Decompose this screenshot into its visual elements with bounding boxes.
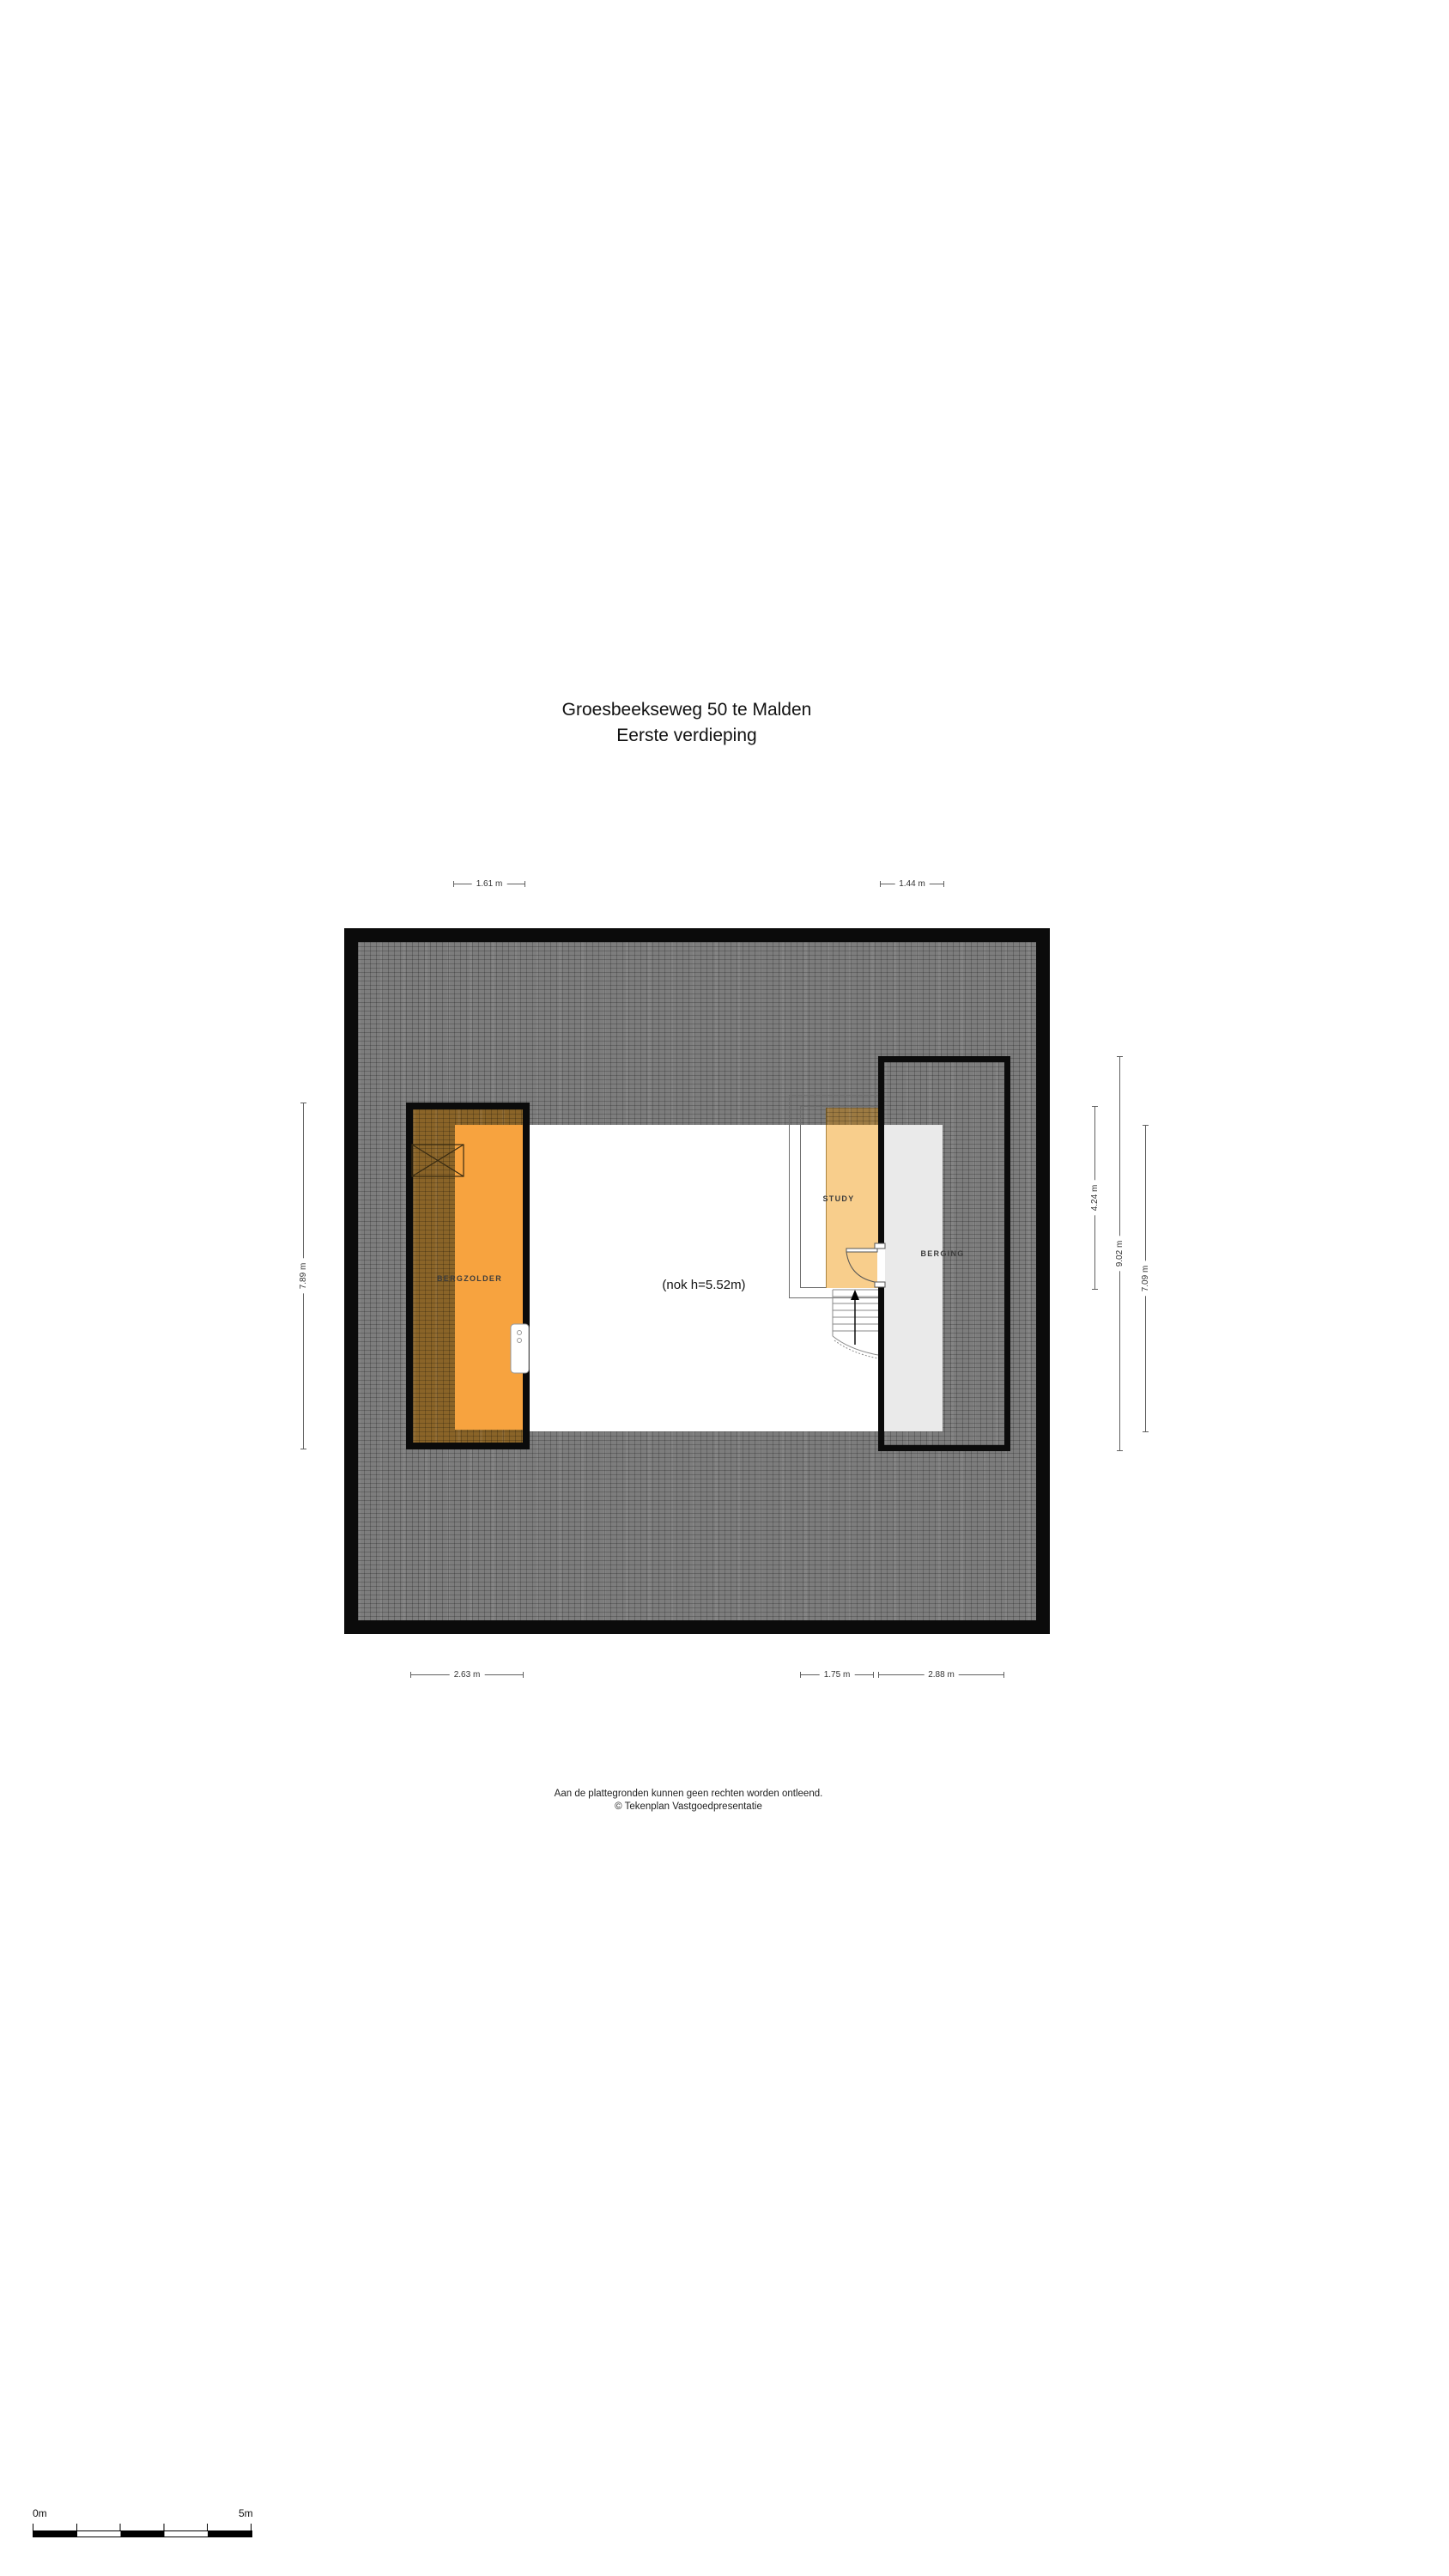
dimension-label: 7.09 m	[1141, 1261, 1151, 1297]
crossed-storage-box	[412, 1145, 464, 1176]
dimension-label: 7.89 m	[299, 1259, 309, 1294]
dimension-label: 2.88 m	[924, 1670, 959, 1680]
page-title: Groesbeekseweg 50 te Malden Eerste verdi…	[0, 697, 1373, 749]
scale-start-label: 0m	[33, 2507, 47, 2519]
scale-bar-labels: 0m 5m	[26, 2507, 258, 2519]
scale-bar	[33, 2530, 252, 2537]
dimension-label: 9.02 m	[1115, 1236, 1125, 1272]
title-floor: Eerste verdieping	[0, 723, 1373, 749]
disclaimer-line2: © Tekenplan Vastgoedpresentatie	[0, 1801, 1377, 1814]
dimension-label: 1.75 m	[820, 1670, 855, 1680]
dimension-right-open-area: 7.09 m	[1145, 1125, 1146, 1432]
dimension-label: 4.24 m	[1090, 1181, 1100, 1216]
ridge-height-note: (nok h=5.52m)	[575, 1278, 833, 1292]
room-label-bergzolder: BERGZOLDER	[437, 1274, 502, 1283]
bergzolder-wall-element	[511, 1324, 529, 1373]
dimension-top-right: 1.44 m	[880, 884, 944, 884]
disclaimer: Aan de plattegronden kunnen geen rechten…	[0, 1788, 1377, 1814]
dimension-left: 7.89 m	[303, 1103, 304, 1449]
dimension-right-study: 4.24 m	[1094, 1106, 1095, 1290]
title-address: Groesbeekseweg 50 te Malden	[0, 697, 1373, 723]
floorplan-sheet: Groesbeekseweg 50 te Malden Eerste verdi…	[0, 0, 1449, 2576]
dimension-bottom-left: 2.63 m	[410, 1674, 524, 1675]
room-label-berging: BERGING	[920, 1249, 964, 1258]
scale-end-label: 5m	[239, 2507, 253, 2519]
dimension-label: 1.44 m	[894, 879, 930, 890]
dimension-label: 1.61 m	[472, 879, 507, 890]
dimension-bottom-right: 2.88 m	[878, 1674, 1004, 1675]
dimension-label: 2.63 m	[450, 1670, 485, 1680]
dimension-top-left: 1.61 m	[453, 884, 525, 884]
study-door	[846, 1249, 877, 1282]
dimension-right-berging: 9.02 m	[1119, 1056, 1120, 1451]
disclaimer-line1: Aan de plattegronden kunnen geen rechten…	[0, 1788, 1377, 1801]
room-label-study: STUDY	[822, 1194, 854, 1203]
dimension-bottom-center: 1.75 m	[800, 1674, 874, 1675]
